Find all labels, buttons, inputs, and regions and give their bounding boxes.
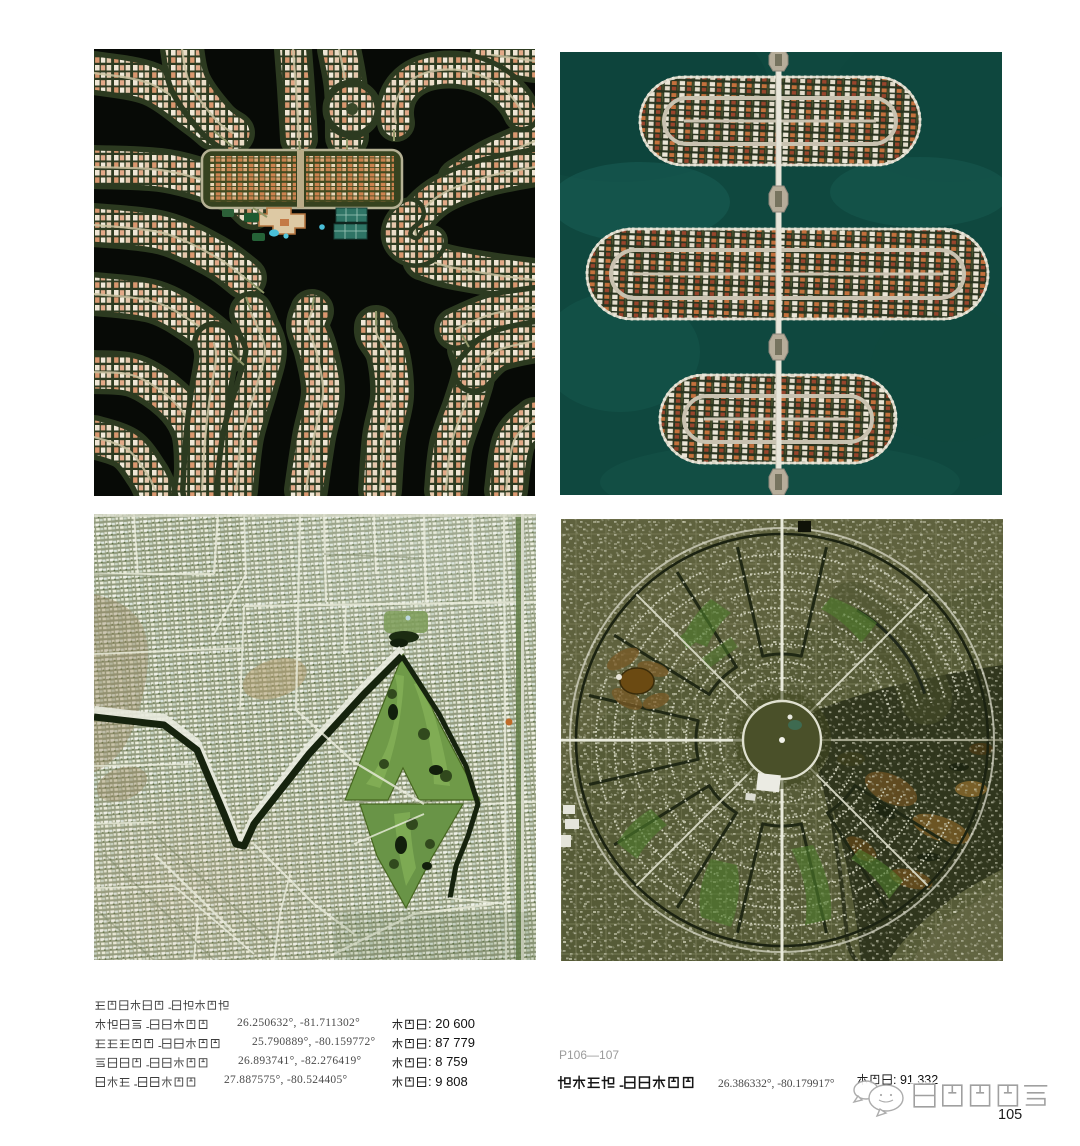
svg-text:105: 105	[998, 1107, 1022, 1123]
svg-text:26.386332°, -80.179917°: 26.386332°, -80.179917°	[718, 1078, 835, 1090]
svg-text:P106—107: P106—107	[559, 1048, 619, 1062]
